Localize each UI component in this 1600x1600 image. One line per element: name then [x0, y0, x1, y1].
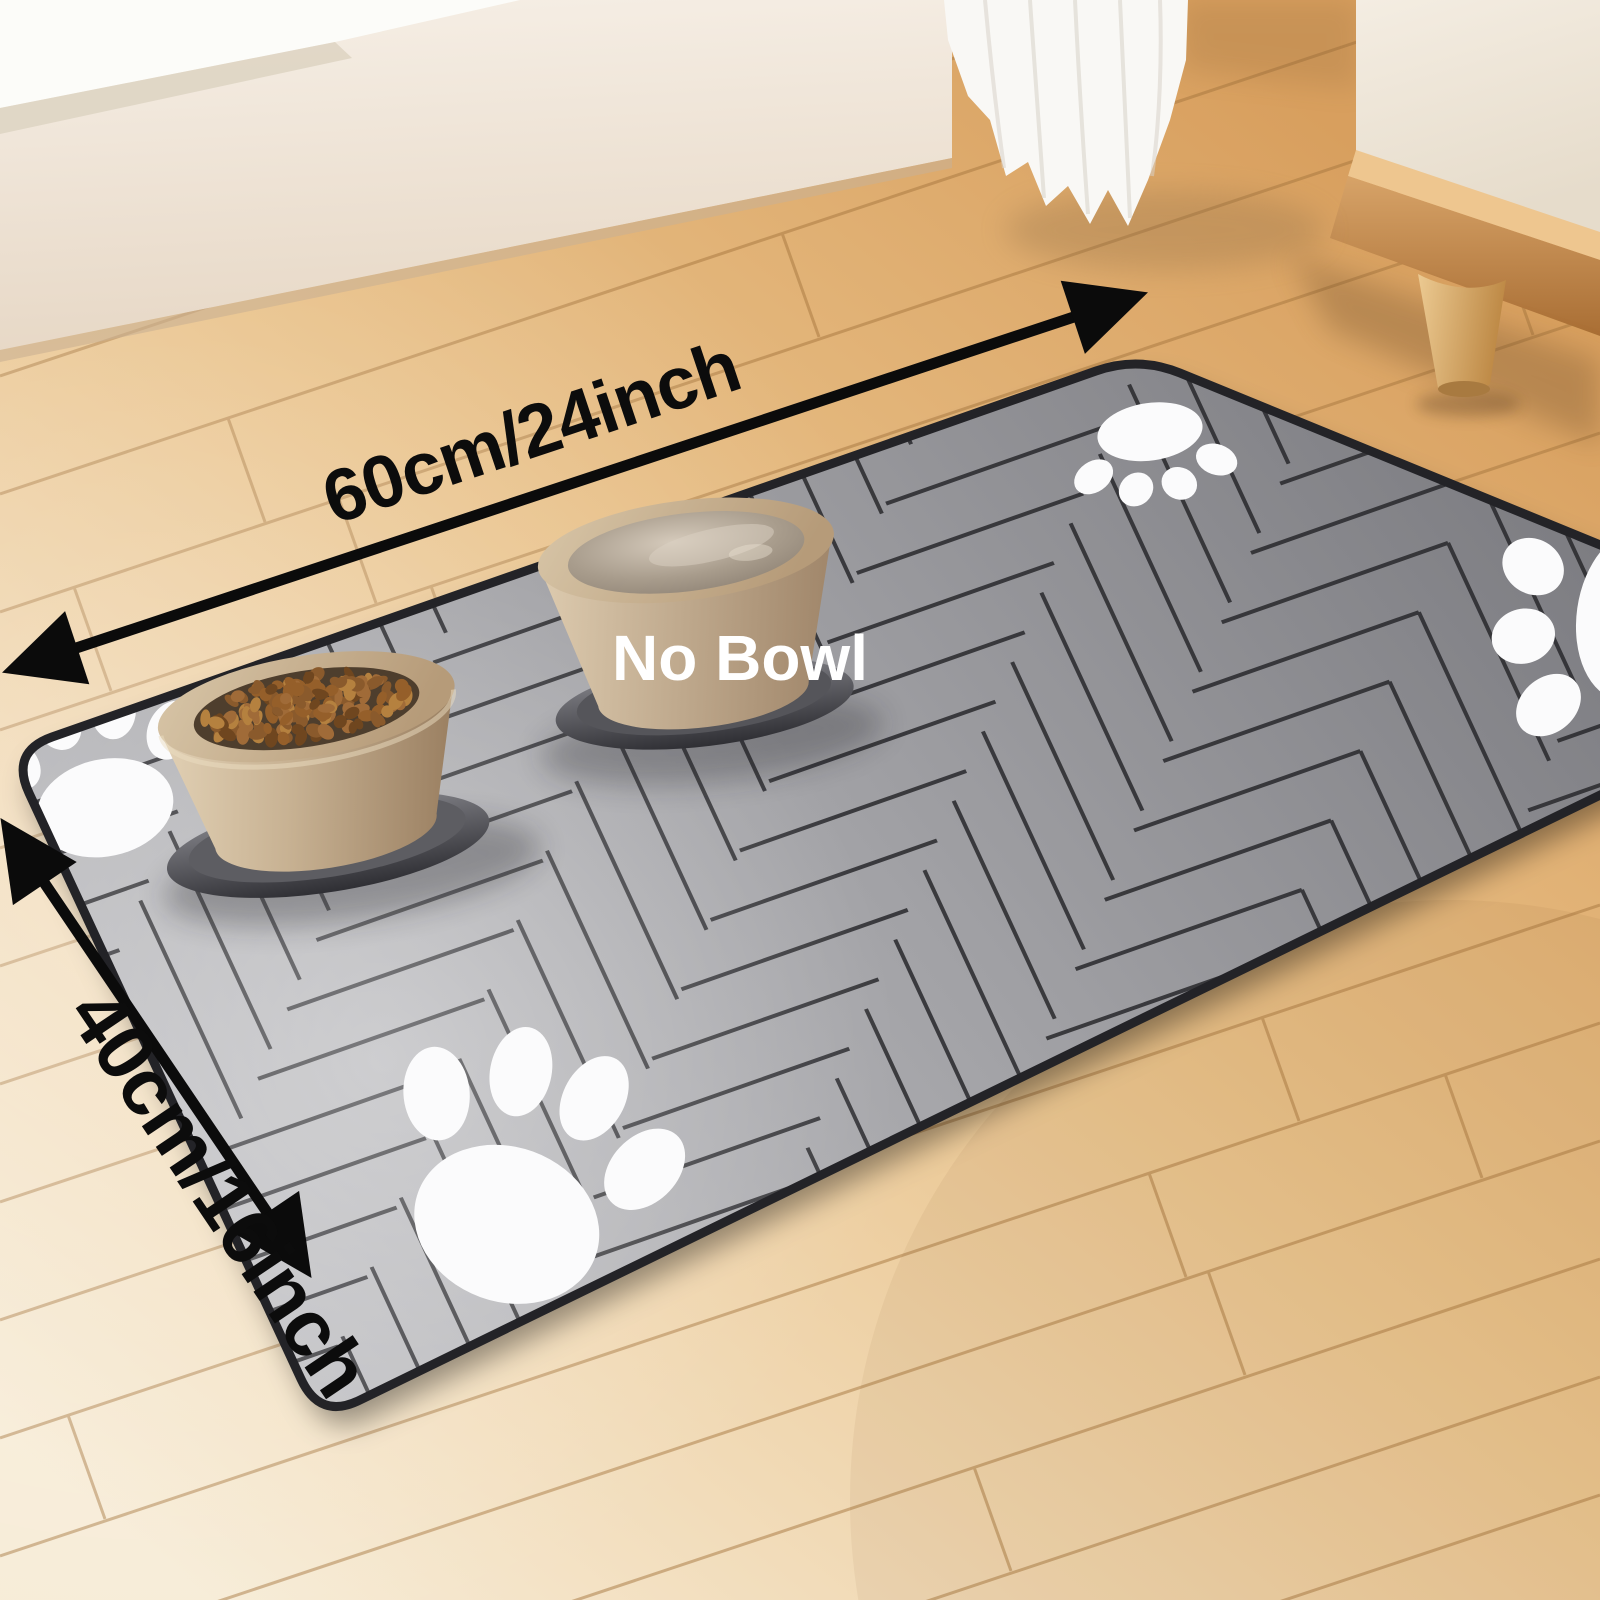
cabinet-leg-foot	[1438, 381, 1490, 397]
product-photo-pet-feeding-mat: 60cm/24inch 40cm/16inch No Bowl	[0, 0, 1600, 1600]
curtain-shadow	[1005, 190, 1325, 270]
scene-canvas: 60cm/24inch 40cm/16inch No Bowl	[0, 0, 1600, 1600]
no-bowl-label: No Bowl	[612, 622, 868, 694]
